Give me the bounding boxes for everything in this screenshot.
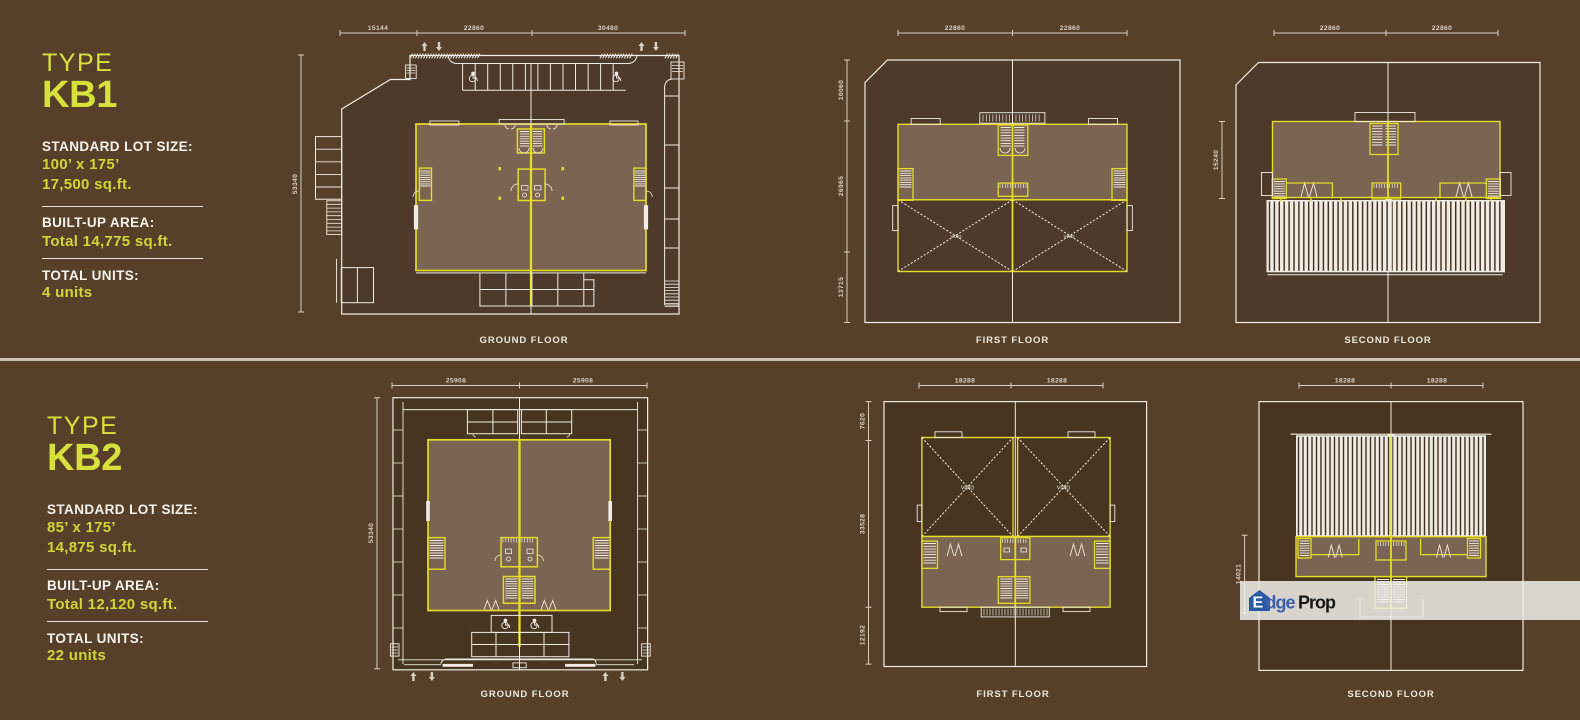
svg-text:22860: 22860: [1432, 25, 1452, 32]
svg-text:22860: 22860: [945, 25, 965, 32]
svg-text:33528: 33528: [860, 514, 867, 534]
svg-text:SECOND FLOOR: SECOND FLOOR: [1344, 335, 1431, 346]
svg-text:SECOND FLOOR: SECOND FLOOR: [1347, 689, 1434, 700]
svg-text:25908: 25908: [573, 378, 593, 385]
svg-text:GROUND FLOOR: GROUND FLOOR: [481, 689, 570, 700]
svg-text:VOID: VOID: [1063, 234, 1075, 239]
svg-text:22860: 22860: [1060, 25, 1080, 32]
svg-text:15240: 15240: [1213, 150, 1220, 170]
svg-text:Prop: Prop: [1298, 593, 1336, 613]
svg-text:53340: 53340: [368, 523, 375, 543]
svg-text:13715: 13715: [838, 277, 845, 297]
svg-text:10060: 10060: [838, 80, 845, 100]
svg-text:FIRST FLOOR: FIRST FLOOR: [976, 335, 1049, 346]
svg-text:dge: dge: [1266, 593, 1296, 613]
svg-text:25908: 25908: [446, 378, 466, 385]
svg-text:12192: 12192: [860, 625, 867, 645]
svg-text:18288: 18288: [1335, 378, 1355, 385]
svg-text:15144: 15144: [368, 25, 388, 32]
svg-text:VOID: VOID: [961, 486, 974, 492]
svg-text:VOID: VOID: [1057, 486, 1070, 492]
svg-text:E: E: [1253, 595, 1264, 612]
svg-text:22860: 22860: [464, 25, 484, 32]
svg-text:18288: 18288: [955, 378, 975, 385]
svg-text:FIRST FLOOR: FIRST FLOOR: [976, 689, 1049, 700]
svg-text:30480: 30480: [598, 25, 618, 32]
svg-text:VOID: VOID: [950, 234, 962, 239]
svg-text:7620: 7620: [860, 413, 867, 429]
svg-text:18288: 18288: [1427, 378, 1447, 385]
svg-text:18288: 18288: [1047, 378, 1067, 385]
svg-text:GROUND FLOOR: GROUND FLOOR: [480, 335, 569, 346]
svg-text:22860: 22860: [1320, 25, 1340, 32]
svg-text:26965: 26965: [838, 176, 845, 196]
